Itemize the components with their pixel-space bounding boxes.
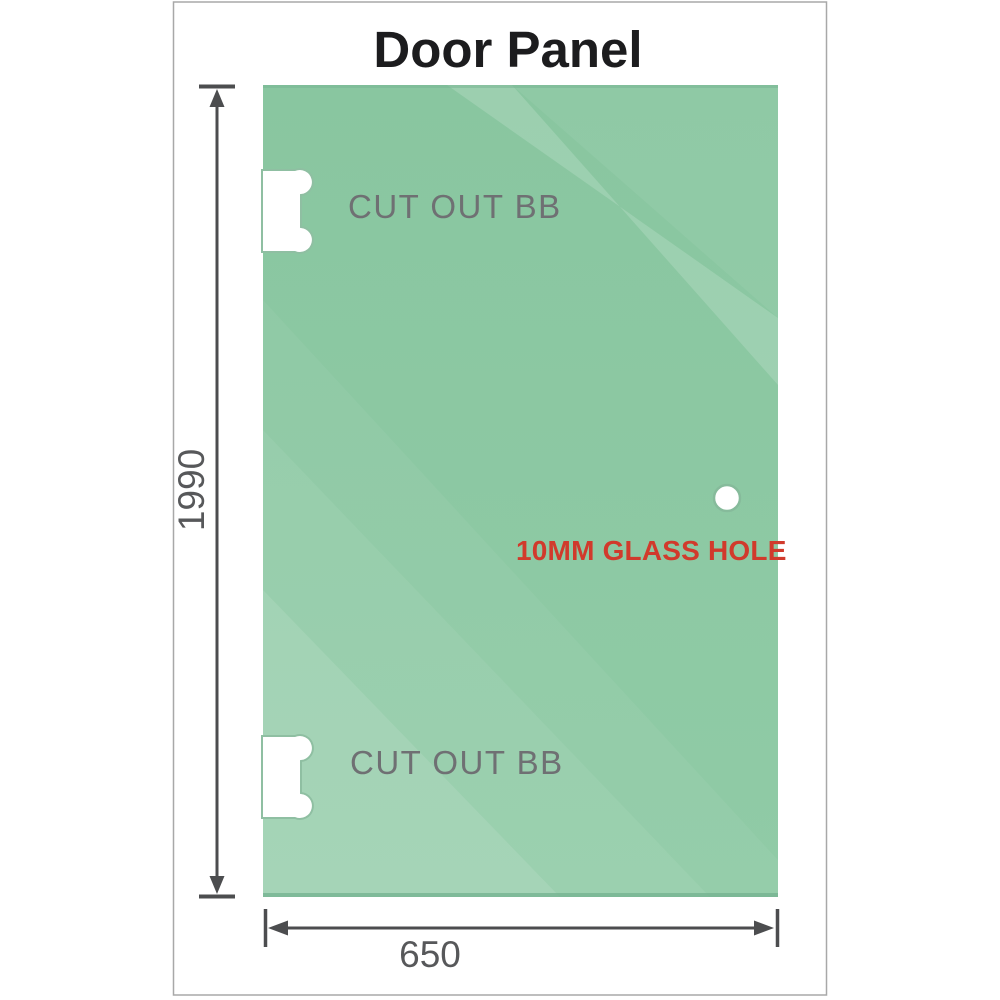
diagram-drawing xyxy=(0,0,1000,1000)
page-title: Door Panel xyxy=(173,20,843,79)
width-dim-arrow-left xyxy=(268,921,288,936)
height-dimension-value: 1990 xyxy=(172,410,212,570)
height-dim-arrow-up xyxy=(210,89,225,107)
width-dimension xyxy=(266,909,778,947)
glass-hole xyxy=(714,485,740,511)
cutout-bottom-label: CUT OUT BB xyxy=(350,744,564,782)
cutout-top-label: CUT OUT BB xyxy=(348,188,562,226)
width-dim-arrow-right xyxy=(754,921,774,936)
height-dim-arrow-down xyxy=(210,876,225,894)
width-dimension-value: 650 xyxy=(360,936,500,974)
door-panel-diagram: Door Panel CUT OUT BB CUT OUT BB 10MM GL… xyxy=(0,0,1000,1000)
glass-top-edge xyxy=(263,85,778,88)
glass-bottom-edge xyxy=(263,893,778,897)
glass-hole-label: 10MM GLASS HOLE xyxy=(516,535,787,567)
